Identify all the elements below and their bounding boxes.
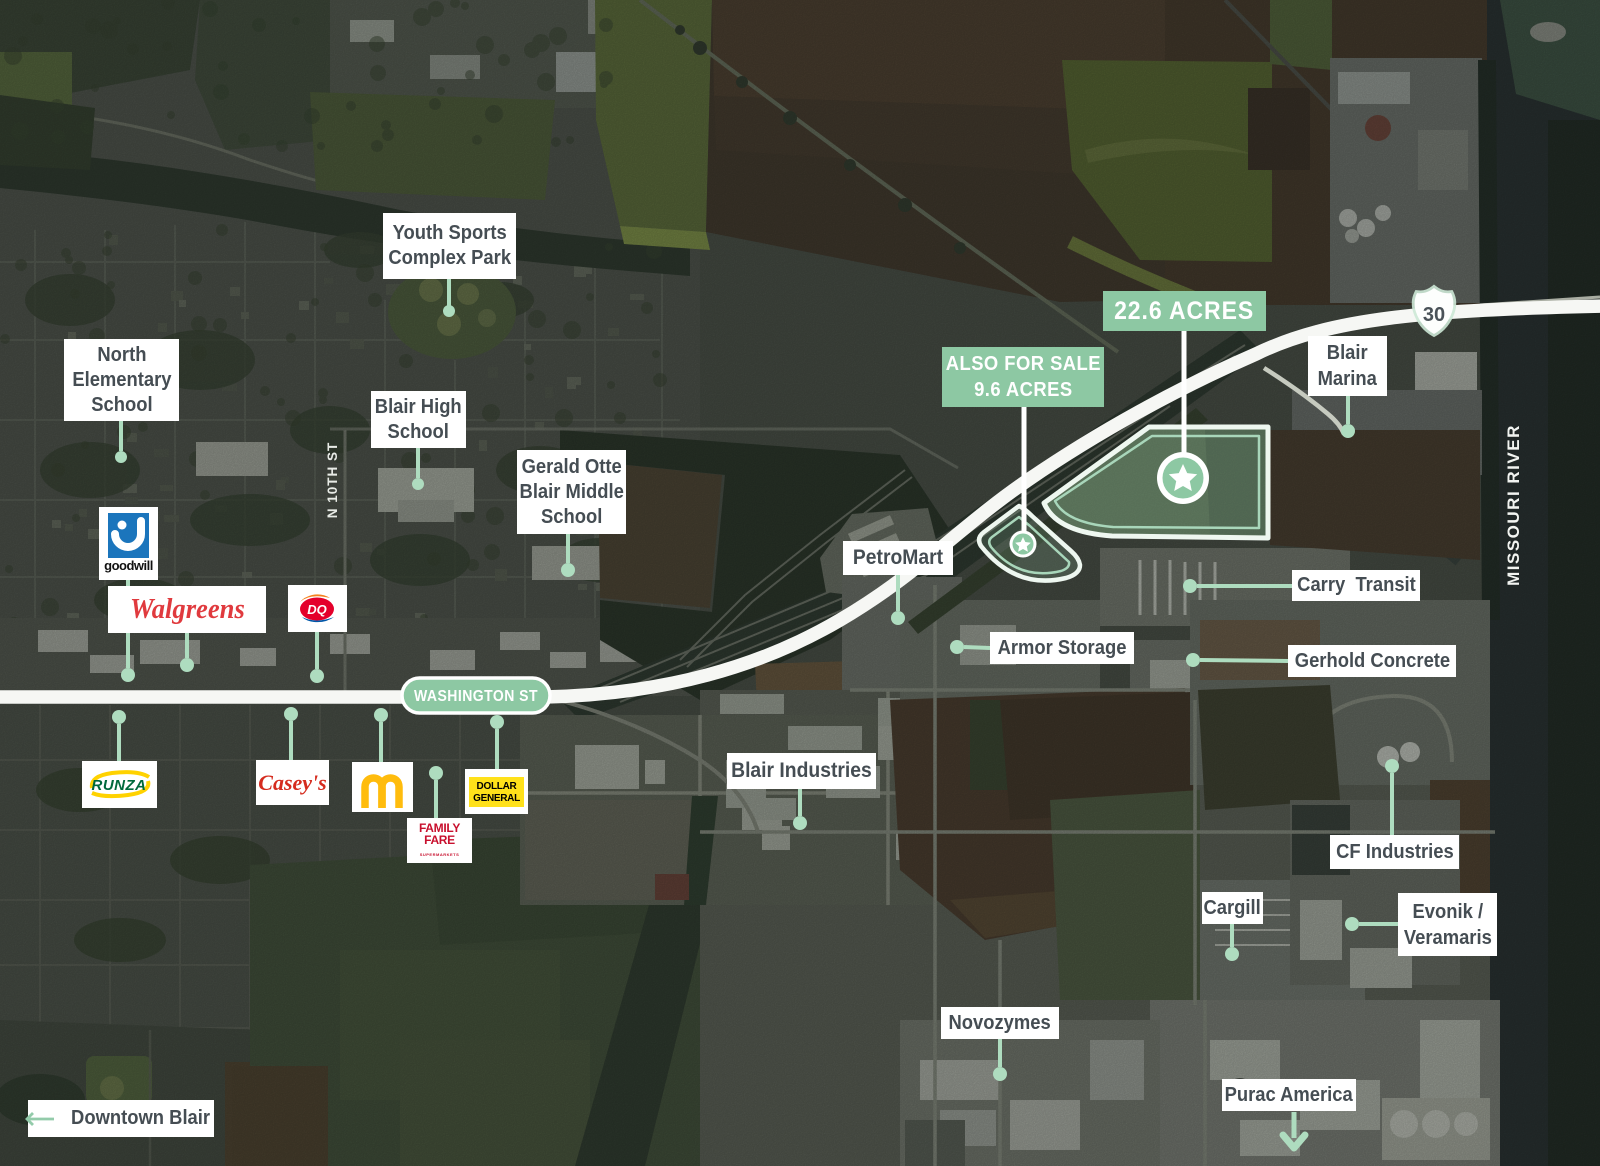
svg-text:goodwill: goodwill bbox=[104, 558, 153, 573]
svg-text:MISSOURI RIVER: MISSOURI RIVER bbox=[1504, 424, 1523, 586]
svg-text:30: 30 bbox=[1423, 304, 1445, 326]
svg-text:DQ: DQ bbox=[307, 602, 327, 617]
svg-text:N 10TH ST: N 10TH ST bbox=[325, 442, 340, 519]
svg-text:WASHINGTON ST: WASHINGTON ST bbox=[414, 688, 538, 705]
svg-text:RUNZA: RUNZA bbox=[92, 777, 147, 794]
